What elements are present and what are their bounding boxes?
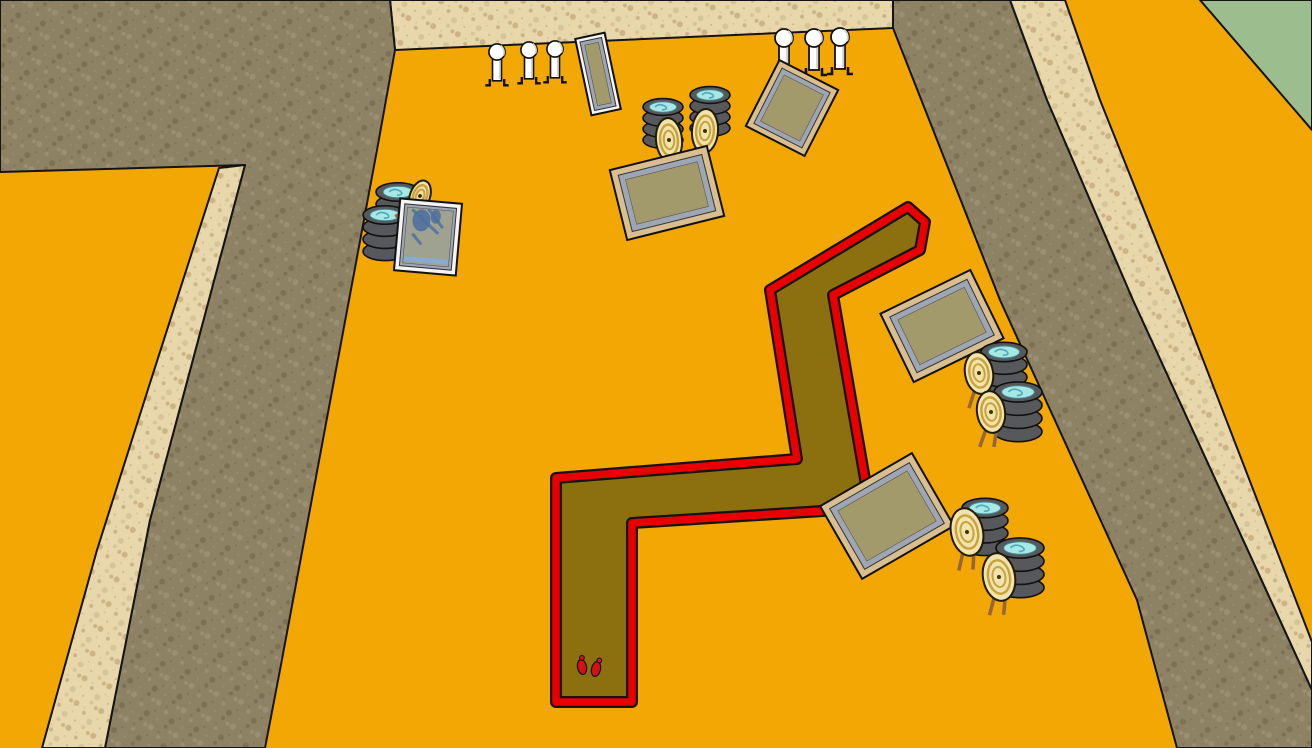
popper-target[interactable] [543,41,566,82]
popper-target[interactable] [827,28,853,74]
grass-corner [1200,0,1312,130]
zigzag-trench-course[interactable] [556,207,925,702]
wood-frame-panel-center[interactable] [610,146,724,240]
popper-target[interactable] [517,42,540,83]
popper-target[interactable] [485,44,508,85]
left-berm-face [0,0,395,748]
popper-target[interactable] [801,29,827,75]
range-3d-viewport[interactable] [0,0,1312,748]
silver-frame-panel-top[interactable] [575,33,621,116]
mirror-glass-panel-left[interactable] [394,198,462,275]
scene-canvas[interactable] [0,0,1312,748]
